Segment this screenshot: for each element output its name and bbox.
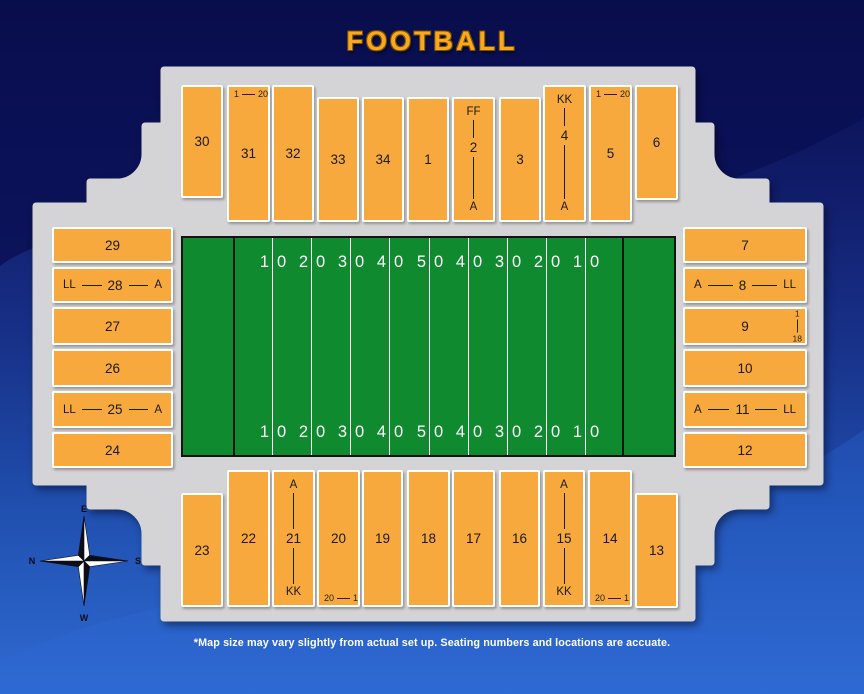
section-28[interactable]: LL 28 A: [52, 267, 173, 303]
yard-number: 30: [338, 423, 372, 442]
row-line: [708, 409, 730, 410]
section-11[interactable]: A 11 LL: [683, 391, 807, 428]
section-2[interactable]: FF 2 A: [452, 97, 495, 222]
row-label: A: [290, 479, 298, 491]
row-line: [564, 548, 565, 584]
section-23[interactable]: 23: [181, 493, 223, 607]
section-label: 4: [561, 128, 569, 143]
section-18[interactable]: 18: [407, 470, 450, 607]
section-label: 6: [653, 135, 661, 150]
section-label: 8: [739, 278, 747, 293]
section-32[interactable]: 32: [272, 85, 314, 222]
section-label: 7: [741, 238, 749, 253]
row-label: A: [154, 279, 162, 291]
row-line: [755, 409, 777, 410]
section-1[interactable]: 1: [407, 97, 449, 222]
yard-number: 10: [260, 253, 294, 272]
section-label: 19: [375, 531, 390, 546]
section-24[interactable]: 24: [52, 432, 173, 468]
row-label: KK: [557, 94, 572, 106]
yard-number: 30: [338, 253, 372, 272]
yard-number: 30: [495, 253, 529, 272]
section-label: 26: [105, 361, 120, 376]
yard-number: 30: [495, 423, 529, 442]
row-line: [752, 285, 777, 286]
section-label: 30: [194, 134, 209, 149]
seat-range-label: 1 18: [793, 309, 802, 344]
section-label: 25: [108, 402, 123, 417]
row-label: A: [560, 479, 568, 491]
yard-number: 20: [299, 253, 333, 272]
section-label: 31: [241, 146, 256, 161]
section-label: 21: [286, 531, 301, 546]
compass-label-bottom: W: [80, 613, 89, 623]
section-label: 34: [375, 152, 390, 167]
section-label: 17: [466, 531, 481, 546]
row-label: KK: [286, 586, 301, 598]
section-15[interactable]: A 15 KK: [543, 470, 585, 607]
section-label: 22: [241, 531, 256, 546]
section-3[interactable]: 3: [499, 97, 541, 222]
row-label: KK: [556, 586, 571, 598]
yard-number: 50: [417, 423, 451, 442]
section-27[interactable]: 27: [52, 307, 173, 345]
section-12[interactable]: 12: [683, 432, 807, 468]
section-17[interactable]: 17: [452, 470, 495, 607]
section-label: 28: [108, 278, 123, 293]
row-line: [473, 120, 474, 138]
section-34[interactable]: 34: [362, 97, 404, 222]
page-title: FOOTBALL: [0, 26, 864, 57]
seat-range-label: 201: [595, 593, 629, 603]
disclaimer-text: *Map size may vary slightly from actual …: [0, 637, 864, 649]
section-label: 3: [516, 152, 524, 167]
section-21[interactable]: A 21 KK: [272, 470, 315, 607]
section-29[interactable]: 29: [52, 227, 173, 263]
section-label: 33: [330, 152, 345, 167]
row-label: LL: [63, 404, 76, 416]
section-label: 24: [105, 443, 120, 458]
row-line: [564, 145, 565, 199]
row-line: [82, 285, 102, 286]
seat-range-label: 201: [324, 593, 358, 603]
section-label: 14: [602, 531, 617, 546]
row-line: [129, 409, 149, 410]
section-label: 32: [285, 146, 300, 161]
seat-range-label: 120: [234, 89, 268, 99]
section-33[interactable]: 33: [317, 97, 359, 222]
section-31[interactable]: 120 31: [227, 85, 270, 222]
yard-number: 20: [299, 423, 333, 442]
row-label: A: [694, 279, 702, 291]
section-label: 2: [470, 140, 478, 155]
section-label: 20: [331, 531, 346, 546]
section-label: 18: [421, 531, 436, 546]
yard-number: 10: [573, 253, 607, 272]
yard-number: 20: [534, 423, 568, 442]
row-line: [473, 157, 474, 199]
section-8[interactable]: A 8 LL: [683, 267, 807, 303]
range-dash: [608, 598, 621, 599]
section-label: 16: [512, 531, 527, 546]
goal-line: [233, 238, 235, 455]
yard-number: 40: [377, 253, 411, 272]
compass-rose-icon: E W N S: [20, 500, 150, 630]
row-line: [293, 548, 294, 584]
row-line: [129, 285, 149, 286]
section-13[interactable]: 13: [635, 493, 678, 608]
section-10[interactable]: 10: [683, 349, 807, 387]
range-dash: [337, 598, 350, 599]
section-5[interactable]: 120 5: [589, 85, 632, 222]
section-16[interactable]: 16: [499, 470, 540, 607]
compass-label-top: E: [81, 504, 87, 514]
row-label: LL: [783, 404, 796, 416]
section-14[interactable]: 201 14: [588, 470, 632, 607]
yard-number: 40: [456, 423, 490, 442]
section-30[interactable]: 30: [181, 85, 223, 198]
yard-number: 40: [456, 253, 490, 272]
yard-number: 40: [377, 423, 411, 442]
section-25[interactable]: LL 25 A: [52, 391, 173, 428]
section-label: 29: [105, 238, 120, 253]
seat-range-label: 120: [596, 89, 630, 99]
row-line: [564, 493, 565, 529]
row-label: A: [694, 404, 702, 416]
row-line: [564, 108, 565, 126]
yard-number: 10: [573, 423, 607, 442]
football-field: 10 20 30 40 50 40 30 20 10 10 20 30 40 5…: [181, 236, 676, 457]
goal-line: [622, 238, 624, 455]
section-label: 23: [194, 543, 209, 558]
section-label: 10: [737, 361, 752, 376]
section-20[interactable]: 201 20: [317, 470, 360, 607]
section-label: 11: [735, 402, 749, 417]
row-label: A: [561, 201, 569, 213]
section-7[interactable]: 7: [683, 227, 807, 263]
row-label: LL: [783, 279, 796, 291]
yard-number: 10: [260, 423, 294, 442]
row-label: FF: [466, 106, 480, 118]
section-19[interactable]: 19: [362, 470, 403, 607]
yard-number: 50: [417, 253, 451, 272]
section-4[interactable]: KK 4 A: [543, 85, 586, 222]
row-label: A: [154, 404, 162, 416]
row-label: LL: [63, 279, 76, 291]
compass-label-left: N: [29, 556, 36, 566]
yard-number: 20: [534, 253, 568, 272]
section-26[interactable]: 26: [52, 349, 173, 387]
section-label: 27: [105, 319, 120, 334]
section-label: 9: [741, 319, 749, 334]
row-line: [82, 409, 102, 410]
section-label: 5: [607, 146, 615, 161]
row-line: [708, 285, 733, 286]
range-dash: [604, 94, 617, 95]
section-9[interactable]: 9 1 18: [683, 307, 807, 345]
range-dash: [242, 94, 255, 95]
section-22[interactable]: 22: [227, 470, 270, 607]
section-label: 15: [556, 531, 571, 546]
section-label: 12: [737, 443, 752, 458]
section-label: 1: [424, 152, 432, 167]
stadium-seating-map: FOOTBALL 30 120 31 32 33 34 1 FF 2 A 3: [0, 0, 864, 694]
section-label: 13: [649, 543, 664, 558]
compass-label-right: S: [135, 556, 141, 566]
range-dash: [797, 320, 798, 333]
section-6[interactable]: 6: [635, 85, 678, 200]
row-line: [293, 493, 294, 529]
row-label: A: [470, 201, 478, 213]
